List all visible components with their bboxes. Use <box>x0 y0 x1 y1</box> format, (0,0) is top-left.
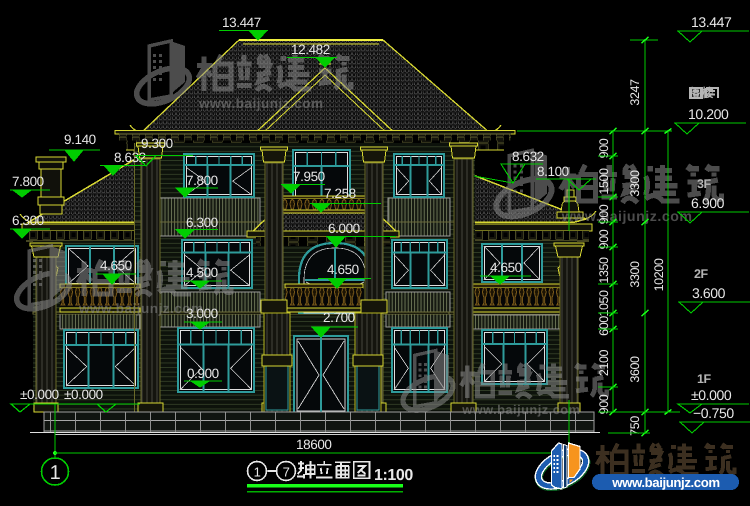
svg-text:3247: 3247 <box>628 79 642 106</box>
svg-text:900: 900 <box>597 138 611 158</box>
svg-text:7.800: 7.800 <box>186 173 218 188</box>
svg-text:1500: 1500 <box>597 168 611 195</box>
svg-text:4.650: 4.650 <box>327 262 359 277</box>
svg-text:−0.750: −0.750 <box>693 405 734 421</box>
svg-text:www.baijunjz.com: www.baijunjz.com <box>561 208 693 224</box>
svg-text:1F: 1F <box>697 372 712 386</box>
svg-text:13.447: 13.447 <box>691 14 732 30</box>
svg-text:9.140: 9.140 <box>64 132 96 147</box>
svg-text:3300: 3300 <box>628 261 642 288</box>
svg-text:8.632: 8.632 <box>114 150 146 165</box>
svg-text:2.700: 2.700 <box>323 310 355 325</box>
svg-text:4.500: 4.500 <box>186 265 218 280</box>
svg-text:1: 1 <box>254 465 261 480</box>
svg-text:6.300: 6.300 <box>186 215 218 230</box>
svg-text:www.baijunjz.com: www.baijunjz.com <box>461 403 580 417</box>
svg-text:900: 900 <box>597 229 611 249</box>
svg-text:1350: 1350 <box>597 257 611 284</box>
svg-text:0.900: 0.900 <box>187 366 219 381</box>
svg-text:±0.000: ±0.000 <box>20 387 59 402</box>
svg-text:6.300: 6.300 <box>12 213 44 228</box>
svg-text:7: 7 <box>283 465 290 480</box>
svg-text:18600: 18600 <box>296 437 332 452</box>
svg-text:www.baijunjz.com: www.baijunjz.com <box>198 96 324 111</box>
svg-text:7.258: 7.258 <box>324 186 356 201</box>
svg-text:10200: 10200 <box>652 258 666 291</box>
svg-text:8.632: 8.632 <box>512 149 544 164</box>
svg-text:7.950: 7.950 <box>293 169 325 184</box>
svg-text:10.200: 10.200 <box>688 106 729 122</box>
svg-text:2100: 2100 <box>597 349 611 376</box>
svg-text:7.800: 7.800 <box>12 174 44 189</box>
svg-text:900: 900 <box>597 394 611 414</box>
svg-text:±0.000: ±0.000 <box>64 387 103 402</box>
svg-text:12.482: 12.482 <box>291 42 330 57</box>
svg-text:9.300: 9.300 <box>141 136 173 151</box>
svg-text:8.100: 8.100 <box>537 164 569 179</box>
svg-text:2F: 2F <box>694 267 709 281</box>
svg-text:www.baijunjz.com: www.baijunjz.com <box>78 301 204 316</box>
svg-text:6.900: 6.900 <box>691 195 725 211</box>
svg-text:6.000: 6.000 <box>328 221 360 236</box>
svg-text:3600: 3600 <box>628 356 642 383</box>
svg-text:±0.000: ±0.000 <box>691 387 732 403</box>
svg-text:www.baijunjz.com: www.baijunjz.com <box>611 475 719 490</box>
svg-text:3300: 3300 <box>628 170 642 197</box>
svg-text:1: 1 <box>50 462 61 484</box>
svg-text:4.650: 4.650 <box>100 258 132 273</box>
svg-text:1:100: 1:100 <box>374 467 413 484</box>
svg-text:3.600: 3.600 <box>692 285 726 301</box>
svg-text:4.650: 4.650 <box>490 260 522 275</box>
svg-text:13.447: 13.447 <box>222 15 261 30</box>
svg-text:3F: 3F <box>697 177 712 191</box>
svg-text:3.000: 3.000 <box>186 306 218 321</box>
svg-text:600: 600 <box>597 316 611 336</box>
svg-text:900: 900 <box>597 204 611 224</box>
